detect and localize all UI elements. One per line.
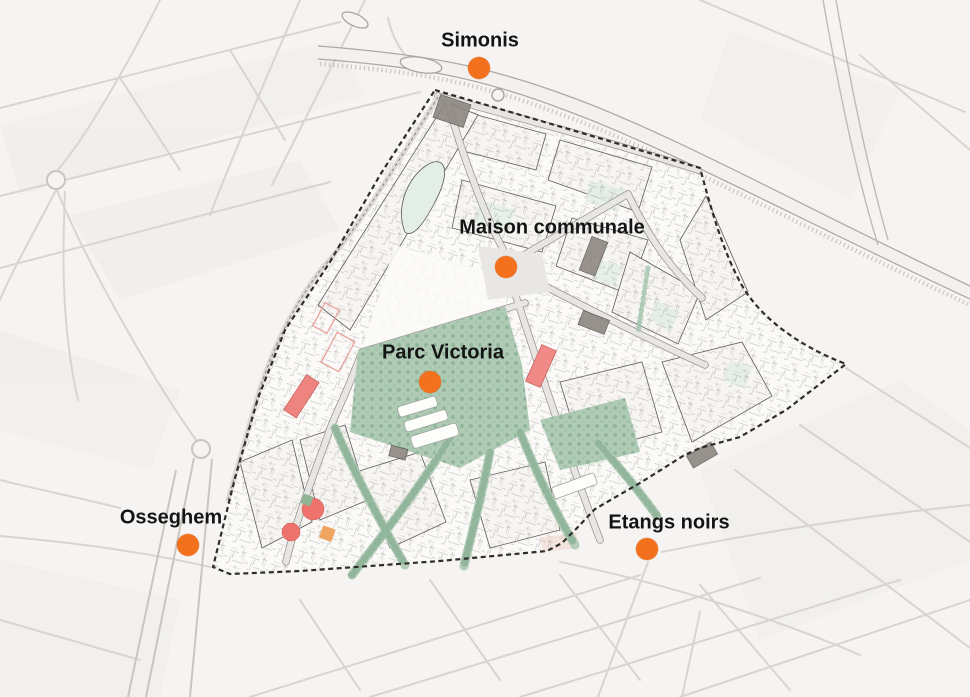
roundabout-osseghem	[192, 440, 210, 458]
marker-etangs-noirs[interactable]	[636, 538, 658, 560]
boulevard-roundabout	[492, 89, 504, 101]
label-osseghem: Osseghem	[120, 507, 222, 530]
marker-simonis[interactable]	[468, 57, 490, 79]
label-maison-communale: Maison communale	[459, 217, 645, 240]
roundabout-northwest	[47, 171, 65, 189]
map-canvas: Simonis Maison communale Parc Victoria O…	[0, 0, 970, 697]
marker-parc-victoria[interactable]	[419, 371, 441, 393]
marker-maison-communale[interactable]	[495, 256, 517, 278]
label-parc-victoria: Parc Victoria	[382, 342, 504, 365]
label-simonis: Simonis	[441, 30, 519, 53]
label-etangs-noirs: Etangs noirs	[608, 512, 729, 535]
marker-osseghem[interactable]	[177, 534, 199, 556]
